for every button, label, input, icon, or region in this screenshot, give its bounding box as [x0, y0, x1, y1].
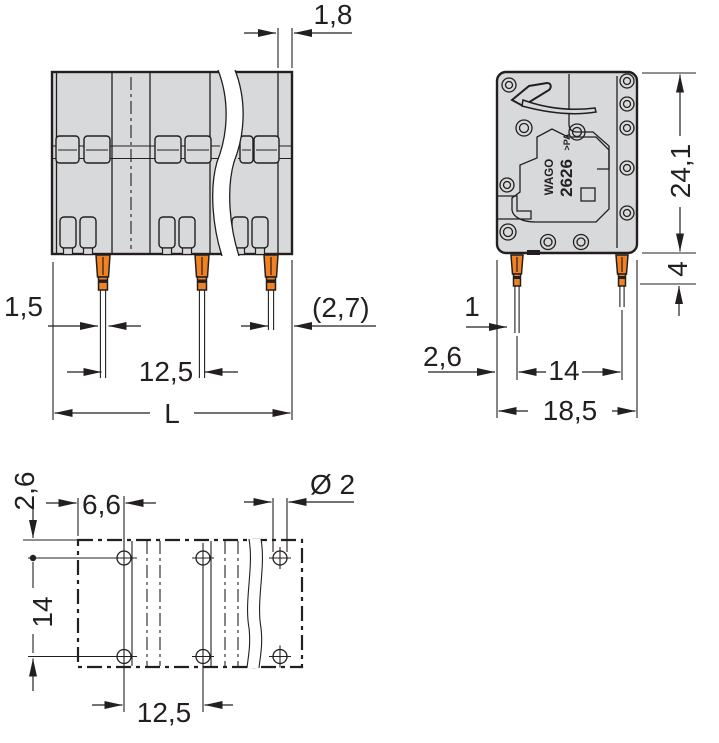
solder-pin: [616, 255, 628, 307]
dim-pin-width-label: 1,5: [4, 291, 43, 322]
side-view: WAGO 2626 >PA: [423, 72, 696, 426]
series-label: 2626: [557, 159, 576, 197]
dim-pitch: 12,5: [67, 356, 238, 387]
dim-edge-to-hole: 6,6: [46, 489, 156, 520]
dim-end-wall: 1,8: [244, 0, 352, 68]
side-body: WAGO 2626 >PA: [497, 72, 637, 255]
dim-hole-diameter: Ø 2: [244, 469, 355, 502]
dim-edge-offset-label: 2,6: [423, 341, 462, 372]
side-pins: [511, 255, 628, 333]
dim-reference-dot: [30, 555, 36, 561]
dim-length-label: L: [164, 398, 180, 429]
dim-pin-width-label: 1: [464, 291, 480, 322]
footprint-view: 2,6 14 6,6 Ø 2 12,5: [9, 469, 355, 728]
dim-height: 24,1: [642, 73, 696, 253]
dim-length: L: [53, 260, 292, 429]
dim-pitch: 12,5: [92, 697, 233, 728]
break-lines: [247, 539, 262, 668]
dim-pin-width: 1,5: [4, 291, 141, 326]
dim-pitch-label: 12,5: [137, 697, 192, 728]
technical-drawing-page: 1,8 1,5 12,5 L (2,7): [0, 0, 719, 743]
dim-pin-width: 1: [464, 291, 507, 327]
footprint-dimensions: 2,6 14 6,6 Ø 2 12,5: [9, 469, 355, 728]
dim-pin-spacing: 14: [517, 310, 622, 386]
dim-edge-offset: 2,6: [423, 260, 497, 418]
front-mid-slots: [56, 136, 279, 163]
front-body: [52, 70, 292, 256]
dim-row-spacing: 14: [27, 562, 58, 691]
solder-pin: [96, 255, 110, 378]
solder-pin: [511, 255, 523, 333]
solder-pin: [195, 255, 209, 378]
dim-hole-diameter-label: Ø 2: [310, 469, 355, 500]
dim-edge-to-row: 2,6: [9, 472, 40, 562]
dim-pin-length: 4: [640, 261, 696, 316]
footprint-outline: [78, 540, 302, 667]
drill-holes: [117, 547, 291, 668]
dim-pin-spacing-label: 14: [548, 355, 579, 386]
dim-pitch-label: 12,5: [139, 356, 194, 387]
dim-end-wall-label: 1,8: [314, 0, 353, 30]
dim-edge-to-hole-label: 6,6: [82, 489, 121, 520]
front-view: 1,8 1,5 12,5 L (2,7): [4, 0, 376, 429]
brand-label: WAGO: [544, 159, 556, 195]
technical-drawing: 1,8 1,5 12,5 L (2,7): [0, 0, 719, 743]
dim-height-label: 24,1: [665, 144, 696, 199]
dim-end-offset-label: (2,7): [312, 292, 370, 323]
dim-edge-to-row-label: 2,6: [9, 472, 40, 511]
dim-end-offset: (2,7): [241, 292, 376, 326]
drill-hole: [269, 646, 291, 668]
drill-hole: [269, 547, 291, 569]
solder-pin: [264, 255, 278, 330]
material-label: >PA: [562, 133, 572, 151]
dim-depth-label: 18,5: [543, 395, 598, 426]
dim-row-spacing-label: 14: [27, 596, 58, 627]
dim-pin-length-label: 4: [662, 261, 693, 277]
